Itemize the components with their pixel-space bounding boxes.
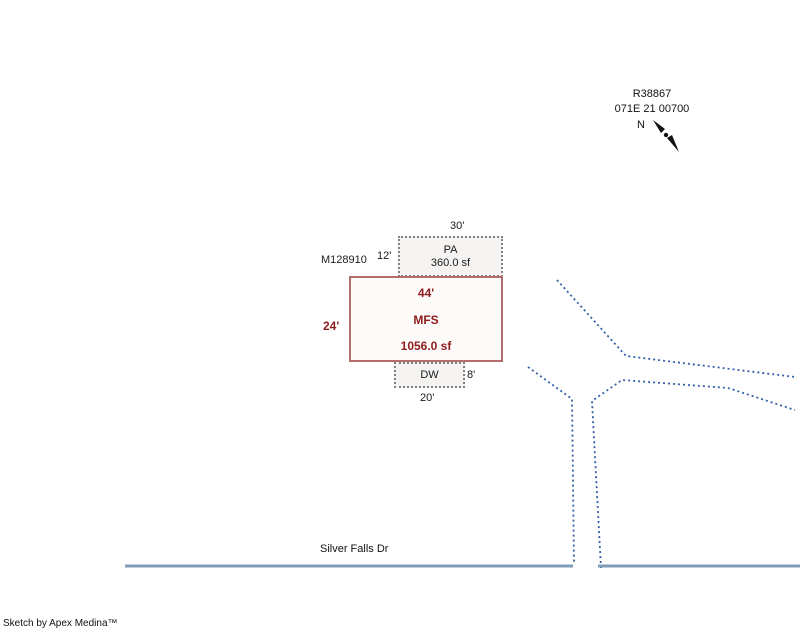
- mfs-area: 1056.0 sf: [401, 339, 452, 353]
- footer-credit: Sketch by Apex Medina™: [3, 618, 118, 629]
- mfs-label: MFS: [413, 313, 438, 327]
- dw-right-dimension: 8': [467, 369, 475, 382]
- property-sketch-canvas: R38867 071E 21 00700 N 30' 12' M128910 P…: [0, 0, 800, 640]
- mfs-structure-box: 44' MFS 1056.0 sf: [349, 276, 503, 362]
- dw-bottom-dimension: 20': [420, 392, 434, 405]
- parcel-info: R38867 071E 21 00700: [596, 87, 708, 117]
- pa-left-dimension: 12': [377, 250, 391, 263]
- dw-structure-box: DW: [394, 362, 465, 388]
- mfs-left-dimension: 24': [323, 319, 339, 333]
- mfs-top-dimension: 44': [418, 286, 434, 300]
- north-label: N: [637, 119, 645, 131]
- dw-label: DW: [420, 369, 438, 381]
- pa-label: PA: [444, 244, 458, 257]
- pa-area: 360.0 sf: [431, 257, 470, 270]
- pa-reference-label: M128910: [321, 254, 367, 267]
- parcel-id: R38867: [596, 87, 708, 102]
- pa-structure-box: PA 360.0 sf: [398, 236, 503, 277]
- parcel-number: 071E 21 00700: [596, 102, 708, 117]
- pa-top-dimension: 30': [450, 220, 464, 233]
- road-name-label: Silver Falls Dr: [320, 543, 388, 555]
- compass-needle-icon: [650, 116, 684, 156]
